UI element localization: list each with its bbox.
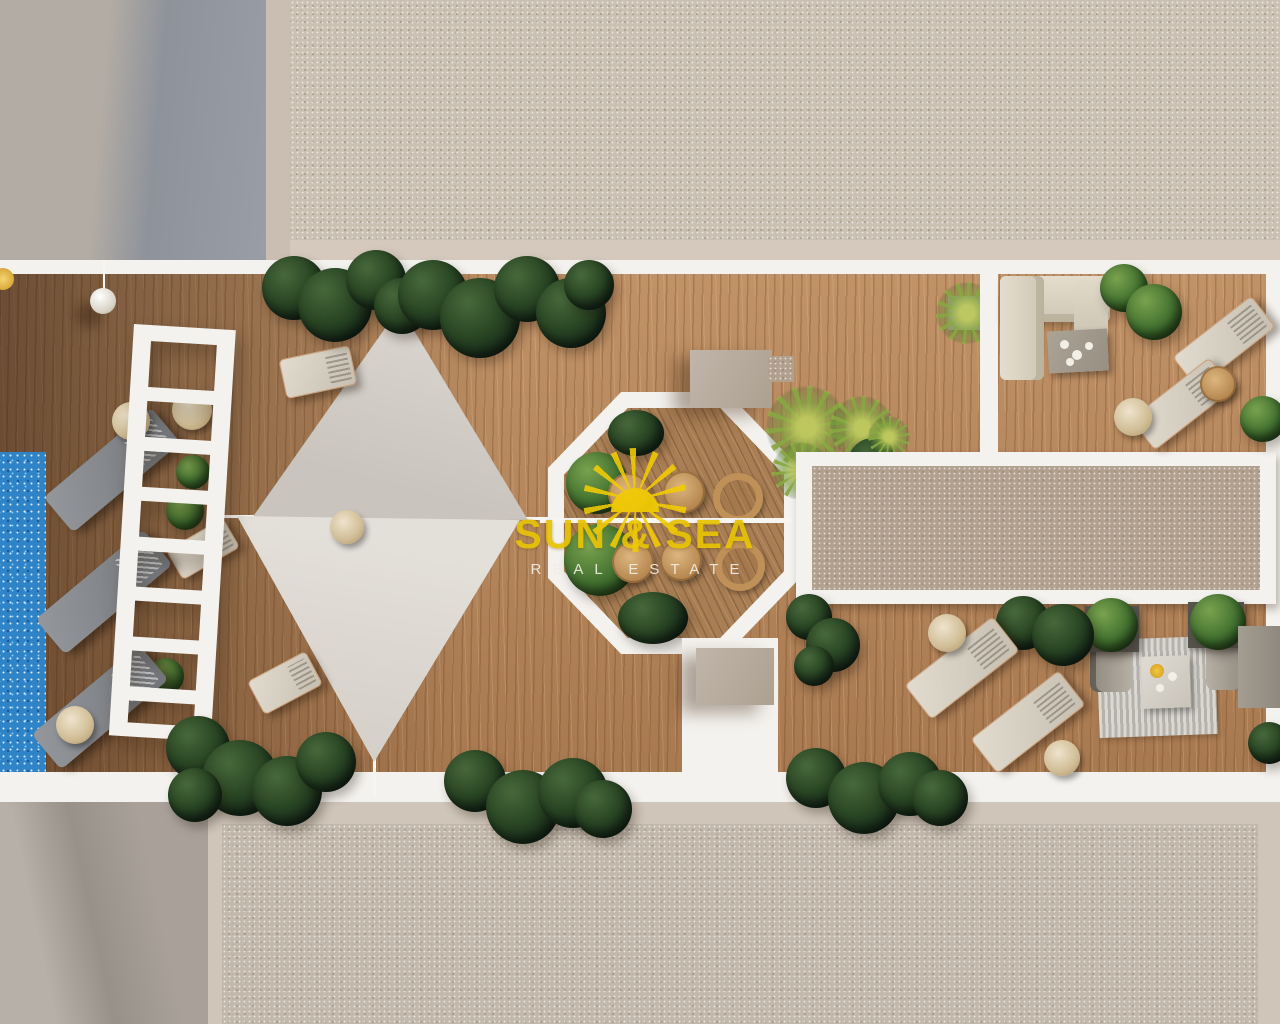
side-table <box>1200 366 1236 402</box>
top-left-roof <box>0 0 266 260</box>
lounge-divider <box>980 260 998 458</box>
towel-table <box>56 706 94 744</box>
sail-cable <box>373 758 376 796</box>
deck-plant <box>1032 604 1094 666</box>
top-gravel-roof <box>290 0 1280 240</box>
octagon-south-bush <box>794 646 834 686</box>
hanging-lamp <box>90 288 116 314</box>
hedge-bottom <box>296 732 356 792</box>
edge-plant <box>1240 396 1280 442</box>
roof-access-block <box>690 350 772 408</box>
swimming-pool <box>0 452 46 772</box>
hedge-bottom <box>168 768 222 822</box>
service-block <box>696 648 774 705</box>
octagon-bush <box>618 592 688 644</box>
pergola-rung <box>134 536 209 554</box>
towel-table <box>928 614 966 652</box>
bottom-gravel-roof <box>222 824 1258 1024</box>
table-flowers <box>1085 342 1093 350</box>
dining-table <box>1141 655 1191 709</box>
table-flowers <box>1072 350 1082 360</box>
sofa-left-arm <box>1000 276 1044 380</box>
terrace-top-edge <box>0 260 1280 274</box>
top-roof-divider <box>266 0 290 260</box>
food-plate <box>1156 684 1164 692</box>
sail-side-table <box>330 510 364 544</box>
plant-pot <box>768 356 794 382</box>
hedge-bottom <box>574 780 632 838</box>
pergola-rung <box>125 686 200 704</box>
pergola-rung <box>143 387 218 405</box>
top-roof-border <box>290 240 1280 262</box>
pergola-rung <box>128 636 203 654</box>
sofa-corner-plant <box>1126 284 1182 340</box>
table-flowers <box>1066 358 1074 366</box>
hedge-top <box>564 260 614 310</box>
pergola-rung <box>140 437 215 455</box>
outdoor-counter <box>1238 626 1280 708</box>
side-table <box>1114 398 1152 436</box>
bottom-left-roof <box>0 802 208 1024</box>
skylight-gravel <box>812 466 1260 590</box>
side-stool <box>1044 740 1080 776</box>
watermark: SUN & SEA REAL ESTATE <box>455 440 815 578</box>
watermark-tagline-text: REAL ESTATE <box>455 561 815 578</box>
aerial-terrace-render: SUN & SEA REAL ESTATE <box>0 0 1280 1024</box>
hedge-bottom <box>912 770 968 826</box>
table-flowers <box>1060 340 1069 349</box>
pergola-rung <box>137 487 212 505</box>
food-plate <box>1168 672 1177 681</box>
pergola-rung <box>131 586 206 604</box>
food-plate <box>1150 664 1164 678</box>
